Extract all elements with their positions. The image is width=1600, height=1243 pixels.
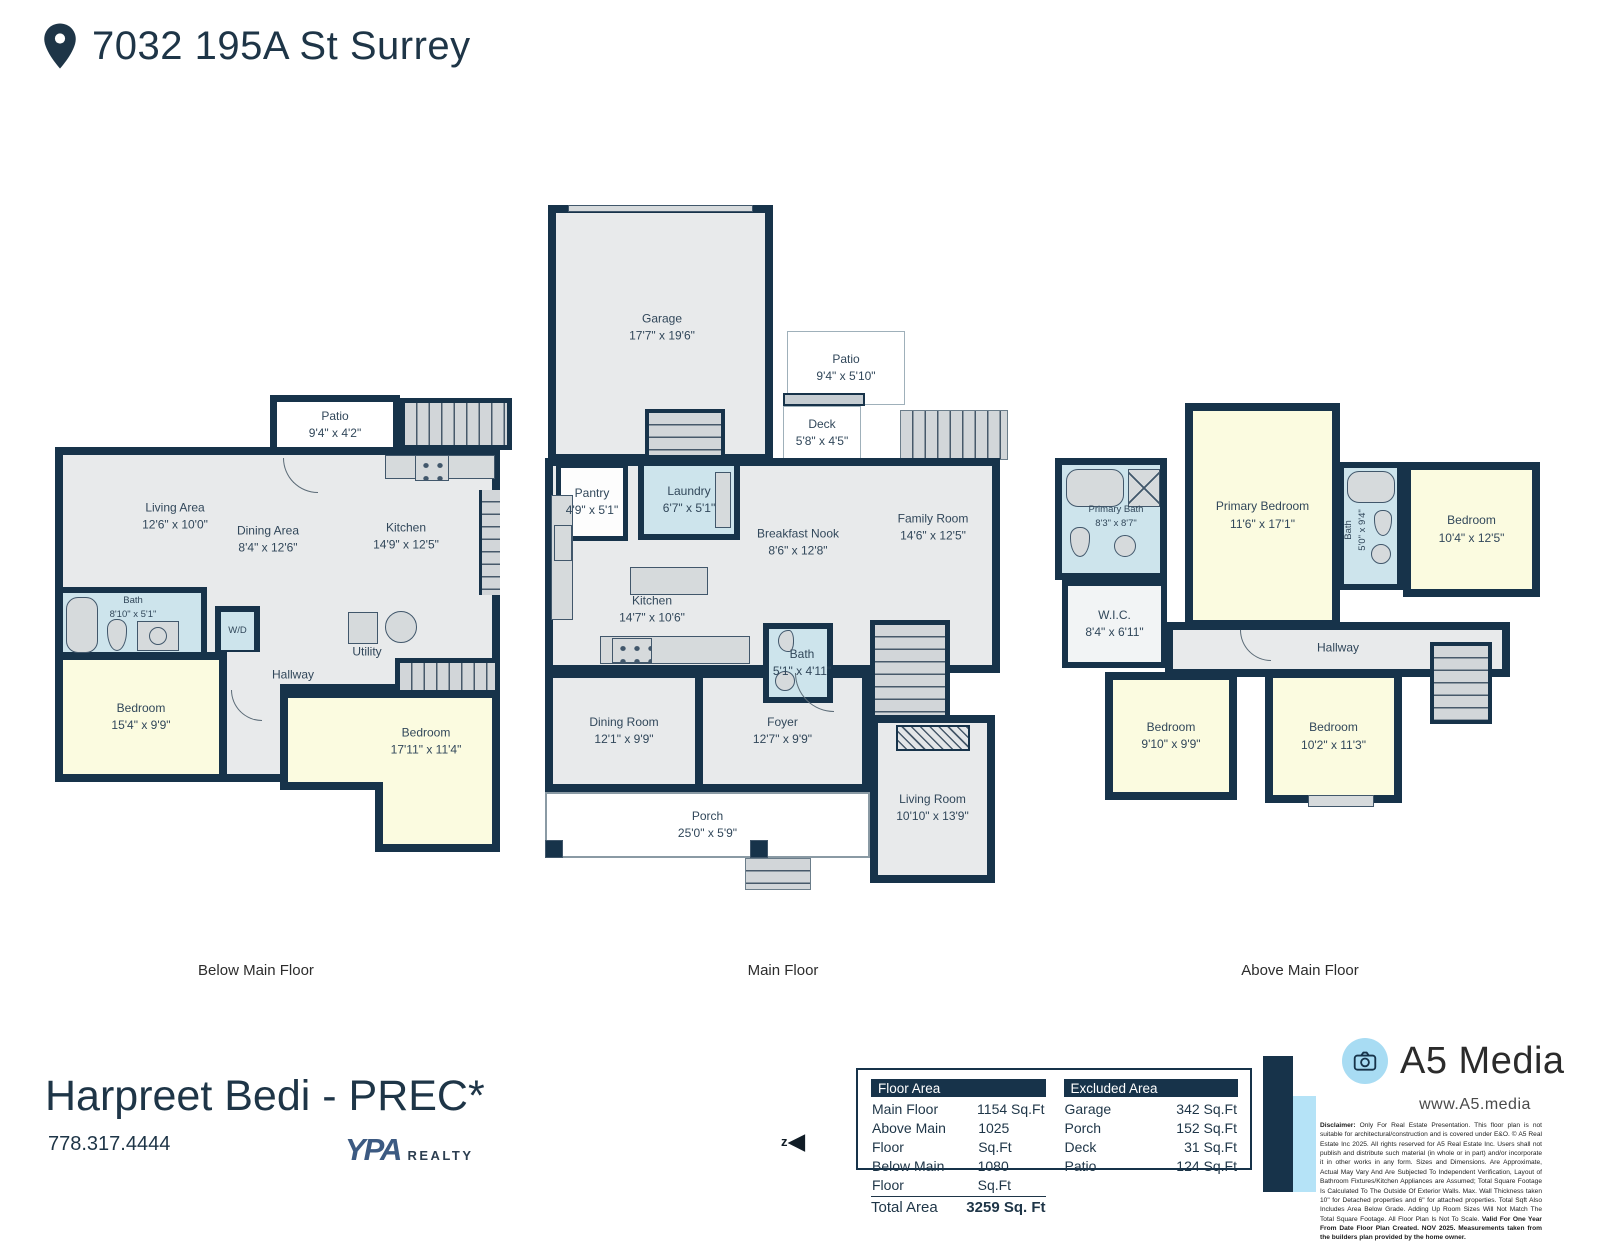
a5-media-website: www.A5.media	[1419, 1096, 1531, 1114]
table-row: Below Main Floor1080 Sq.Ft	[871, 1157, 1046, 1195]
ypa-logo-suffix: REALTY	[407, 1148, 473, 1163]
floor-area-header: Floor Area	[871, 1079, 1046, 1097]
floor-label-below-main: Below Main Floor	[198, 962, 314, 979]
room-label-breakfast-nook: Breakfast Nook 8'6" x 12'8"	[757, 526, 839, 561]
toilet-icon	[1070, 527, 1090, 557]
toilet-icon	[107, 619, 127, 651]
room-label-utility: Utility	[352, 643, 381, 660]
stairs	[479, 490, 500, 595]
room-primary-bedroom: Primary Bedroom11'6" x 17'1"	[1185, 403, 1340, 628]
stairs	[870, 620, 950, 720]
sink-icon	[1114, 535, 1136, 557]
floorplan-main: Garage 17'7" x 19'6" Patio9'4" x 5'10" D…	[540, 195, 1015, 900]
room-patio: Patio9'4" x 4'2"	[270, 395, 400, 455]
room-patio: Patio9'4" x 5'10"	[787, 331, 905, 405]
table-row: Porch152 Sq.Ft	[1064, 1119, 1239, 1138]
floor-area-table: Floor Area Main Floor1154 Sq.Ft Above Ma…	[871, 1079, 1046, 1162]
floorplan-above-main: Primary Bath 8'3" x 8'7" W.I.C.8'4" x 6'…	[1050, 390, 1540, 820]
sink-icon	[1371, 544, 1391, 564]
excluded-area-header: Excluded Area	[1064, 1079, 1239, 1097]
room-dining: Dining Room12'1" x 9'9"	[545, 670, 703, 792]
room-bedroom-1: Bedroom15'4" x 9'9"	[55, 652, 227, 782]
camera-icon	[1342, 1038, 1388, 1084]
room-label-dining-area: Dining Area 8'4" x 12'6"	[237, 523, 299, 558]
room-living: Living Room10'10" x 13'9"	[870, 715, 995, 883]
room-label-bedroom-2: Bedroom 17'11" x 11'4"	[391, 725, 462, 760]
area-tables: Floor Area Main Floor1154 Sq.Ft Above Ma…	[856, 1068, 1252, 1170]
decorative-navy-bar	[1263, 1056, 1293, 1192]
ypa-logo-mark: YPA	[345, 1132, 400, 1168]
room-label-bath: Bath 5'0" x 9'4"	[1342, 509, 1370, 551]
floor-label-above-main: Above Main Floor	[1241, 962, 1359, 979]
stove-icon	[415, 455, 449, 481]
floorplan-below-main: Patio9'4" x 4'2" Living Area 12'6" x 10'…	[55, 390, 515, 870]
room-foyer: Foyer12'7" x 9'9"	[695, 670, 870, 792]
page-title: 7032 195A St Surrey	[92, 24, 471, 69]
a5-media-name: A5 Media	[1400, 1040, 1565, 1083]
ypa-realty-logo: YPA REALTY	[345, 1132, 474, 1168]
room-label-hallway: Hallway	[1317, 639, 1359, 656]
stairs	[1430, 642, 1492, 724]
room-pantry: Pantry4'9" x 5'1"	[556, 463, 628, 541]
room-label-bath: Bath 8'10" x 5'1"	[110, 594, 157, 622]
a5-media-logo: A5 Media	[1342, 1038, 1565, 1084]
table-row: Deck31 Sq.Ft	[1064, 1138, 1239, 1157]
room-wic: W.I.C.8'4" x 6'11"	[1062, 580, 1167, 668]
room-bedroom-2: Bedroom9'10" x 9'9"	[1105, 672, 1237, 800]
floor-label-main: Main Floor	[748, 962, 819, 979]
map-pin-icon	[42, 22, 78, 70]
toilet-icon	[1374, 510, 1392, 536]
stairs	[400, 398, 512, 450]
water-heater-icon	[385, 611, 417, 643]
porch-steps	[745, 858, 811, 890]
room-label-kitchen: Kitchen 14'7" x 10'6"	[619, 593, 685, 628]
room-porch: Porch25'0" x 5'9"	[545, 792, 870, 858]
bathtub-icon	[66, 597, 98, 653]
table-row: Patio124 Sq.Ft	[1064, 1157, 1239, 1176]
shower-icon	[1128, 469, 1160, 507]
room-label-kitchen: Kitchen 14'9" x 12'5"	[373, 520, 439, 555]
room-label-family-room: Family Room 14'6" x 12'5"	[898, 511, 969, 546]
table-row: Above Main Floor1025 Sq.Ft	[871, 1119, 1046, 1157]
table-row: Main Floor1154 Sq.Ft	[871, 1100, 1046, 1119]
stairs	[645, 409, 725, 459]
kitchen-island	[630, 567, 708, 595]
bay-window	[1308, 795, 1374, 807]
room-label-living-area: Living Area 12'6" x 10'0"	[142, 500, 208, 535]
room-label-garage: Garage 17'7" x 19'6"	[629, 311, 695, 346]
room-wd-closet: W/D	[215, 606, 260, 656]
stairs	[900, 410, 1008, 460]
bathtub-icon	[1066, 469, 1124, 507]
room-bedroom-3: Bedroom10'2" x 11'3"	[1265, 670, 1402, 803]
header: 7032 195A St Surrey	[42, 22, 471, 70]
room-bedroom-2-extension	[375, 782, 500, 852]
room-laundry: Laundry6'7" x 5'1"	[638, 460, 740, 540]
north-arrow: z ◀	[781, 1130, 805, 1153]
room-deck: Deck5'8" x 4'5"	[783, 406, 861, 460]
agent-name: Harpreet Bedi - PREC*	[45, 1072, 485, 1121]
stove-icon	[612, 638, 652, 663]
table-row: Garage342 Sq.Ft	[1064, 1100, 1239, 1119]
room-bedroom-1: Bedroom10'4" x 12'5"	[1403, 462, 1540, 597]
room-label-hallway: Hallway	[272, 666, 314, 683]
bathtub-icon	[1347, 471, 1395, 503]
sink-basin-icon	[149, 627, 167, 645]
compass-arrow-icon: ◀	[788, 1130, 806, 1153]
decorative-blue-bar	[1293, 1096, 1316, 1192]
excluded-area-table: Excluded Area Garage342 Sq.Ft Porch152 S…	[1064, 1079, 1239, 1162]
disclaimer-text: Disclaimer: Only For Real Estate Present…	[1320, 1121, 1542, 1243]
total-area-row: Total Area 3259 Sq. Ft	[871, 1196, 1046, 1216]
garage-door	[568, 205, 753, 212]
room-label-primary-bath: Primary Bath 8'3" x 8'7"	[1089, 503, 1144, 531]
agent-phone: 778.317.4444	[48, 1133, 170, 1156]
furnace-icon	[348, 612, 378, 644]
